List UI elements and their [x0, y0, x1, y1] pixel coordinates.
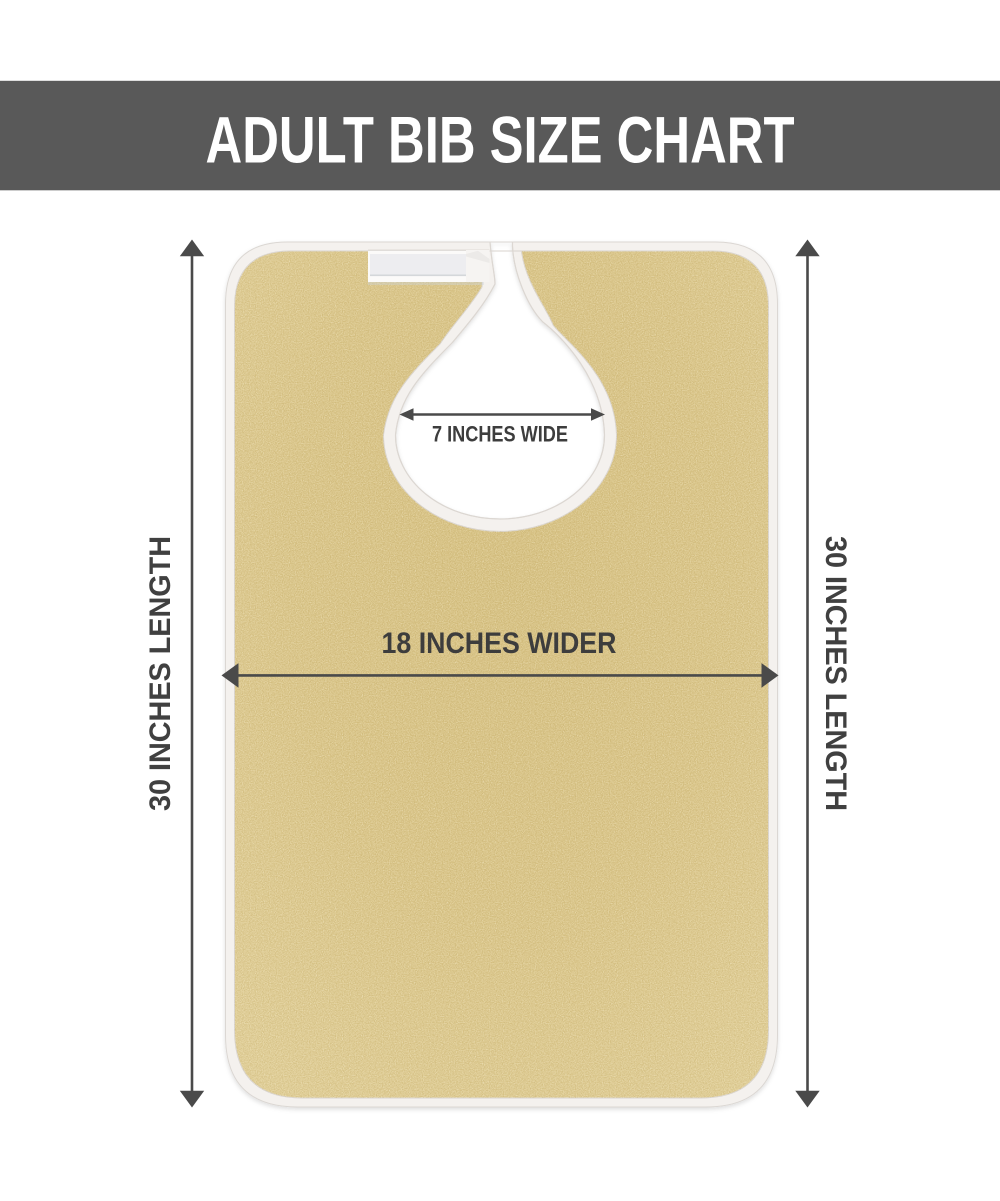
- svg-text:30 INCHES LENGTH: 30 INCHES LENGTH: [819, 536, 852, 811]
- svg-text:7 INCHES WIDE: 7 INCHES WIDE: [432, 421, 568, 446]
- svg-text:18 INCHES WIDER: 18 INCHES WIDER: [382, 627, 617, 660]
- svg-text:ADULT BIB SIZE CHART: ADULT BIB SIZE CHART: [206, 102, 795, 176]
- svg-text:30 INCHES LENGTH: 30 INCHES LENGTH: [144, 536, 177, 811]
